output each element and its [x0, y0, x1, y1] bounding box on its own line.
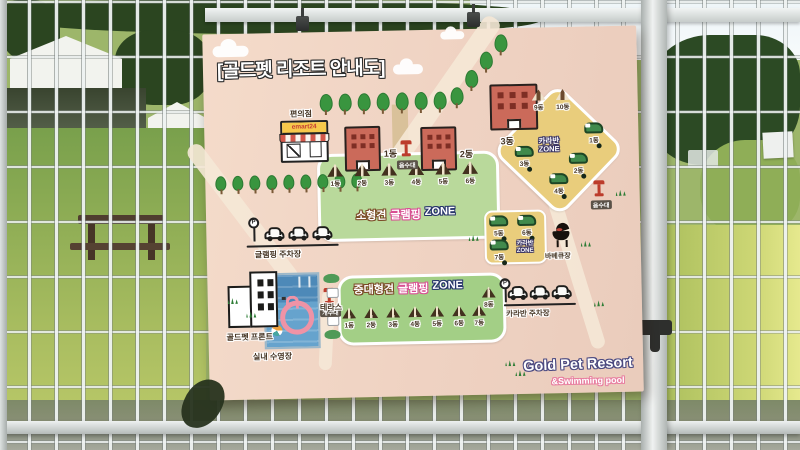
store-awning-icon: [279, 133, 329, 143]
fence-right-post: [641, 0, 667, 450]
car-icon: [508, 290, 528, 298]
caravan-icon: [549, 173, 568, 184]
pool-label: 실내 수영장: [253, 351, 292, 363]
tent-icon: [381, 163, 397, 176]
parking-line: [504, 303, 576, 307]
tent-label: 2동: [366, 319, 376, 329]
tree-icon: [395, 92, 408, 110]
front-building-icon: [227, 271, 288, 328]
photo-of-resort-sign: [골드펫 리조트 안내도] 편의점 emart24: [0, 0, 800, 450]
caravan-icon: [490, 239, 509, 250]
tent-label: 1동: [344, 319, 354, 329]
tent-label: 5동: [438, 175, 448, 185]
map-road: [546, 193, 607, 350]
pool-ladder-icon: [298, 276, 310, 287]
fence-bottom-rail: [0, 421, 800, 434]
tent-label: 2동: [357, 177, 367, 187]
fence-top-rail: [205, 8, 800, 22]
tree-icon: [232, 176, 243, 191]
building-windows: [497, 92, 503, 98]
terrace-bush-icon: [324, 330, 340, 339]
water-fountain-icon: [597, 184, 600, 194]
caravan-zone-label: 카라반 ZONE: [538, 137, 559, 153]
grill-legs: [557, 240, 559, 247]
building-door: [507, 119, 521, 128]
caravan-icon: [584, 122, 603, 133]
parking-sign-icon: P: [499, 278, 510, 289]
caravan-icon: [517, 215, 536, 226]
tree-icon: [338, 93, 351, 111]
fountain-label: 음수대: [591, 200, 612, 209]
tent-icon: [408, 306, 422, 317]
sign-board: [골드펫 리조트 안내도] 편의점 emart24: [202, 25, 644, 400]
store-icon: emart24: [280, 120, 329, 163]
terrace-table-icon: [327, 316, 339, 326]
terrace-bush-icon: [323, 274, 339, 283]
building-windows: [427, 135, 432, 140]
tent-label: 1동: [330, 178, 340, 188]
tent-label: 7동: [474, 317, 484, 327]
tent-label: 8동: [484, 299, 494, 309]
tree-icon: [450, 87, 463, 105]
bbq-label: 바베큐장: [545, 251, 571, 262]
store-label: 편의점: [290, 108, 312, 119]
building-label: 1동: [384, 147, 398, 160]
caravan-icon: [569, 153, 588, 164]
tent-label: 4동: [410, 318, 420, 328]
terrace-label: 테라스: [320, 302, 342, 313]
store-window-icon: [287, 144, 301, 158]
car-icon: [264, 231, 284, 239]
tree-icon: [480, 52, 493, 70]
map-title: [골드펫 리조트 안내도]: [217, 53, 385, 84]
building-label: 2동: [460, 147, 474, 160]
fence-left-post: [0, 0, 7, 450]
tent-icon: [354, 163, 370, 176]
tent-label: 5동: [432, 318, 442, 328]
brand-subtitle: &Swimming pool: [551, 375, 624, 387]
fountain-label: 음수대: [397, 160, 418, 169]
clip-icon: [296, 16, 309, 31]
car-icon: [288, 230, 308, 238]
tree-icon: [249, 175, 260, 190]
tent-label: 3동: [384, 177, 394, 187]
terrace-table-icon: [327, 288, 339, 298]
tree-icon: [465, 70, 478, 88]
car-icon: [552, 289, 572, 297]
tent-icon: [386, 307, 400, 318]
tent-icon: [435, 161, 451, 174]
front-building-tower: [249, 271, 278, 328]
caravan-box-label: 카라반 ZONE: [517, 241, 534, 254]
gate-latch: [650, 333, 660, 352]
caravan-icon: [489, 215, 508, 226]
tent-label: 4동: [411, 176, 421, 186]
car-icon: [312, 230, 332, 238]
grass-icon: [594, 300, 605, 306]
small-dog-zone-title: 소형견 글램핑 ZONE: [356, 205, 456, 223]
tree-icon: [433, 91, 446, 109]
tent-icon: [482, 286, 496, 297]
tree-icon: [357, 93, 370, 111]
tree-icon: [319, 94, 332, 112]
tent-icon: [364, 307, 378, 318]
car-icon: [530, 289, 550, 297]
tent-label: 3동: [388, 319, 398, 329]
grass-icon: [581, 240, 592, 246]
grass-icon: [616, 190, 627, 196]
grass-icon: [505, 360, 516, 366]
building-windows: [351, 134, 356, 139]
tent-icon: [555, 89, 569, 100]
tree-icon: [494, 34, 507, 52]
large-dog-zone-title: 중대형견 글램핑 ZONE: [353, 279, 463, 297]
tent-label: 9동: [534, 101, 544, 111]
caravan-icon: [515, 146, 534, 157]
tent-icon: [430, 306, 444, 317]
tree-icon: [215, 176, 226, 191]
tree-icon: [266, 175, 277, 190]
tree-icon: [376, 93, 389, 111]
tree-icon: [283, 175, 294, 190]
tent-label: 10동: [556, 101, 569, 111]
tree-icon: [414, 92, 427, 110]
tent-icon: [342, 307, 356, 318]
caravan-parking-label: 카라반 주차장: [506, 307, 550, 319]
building-label: 3동: [500, 134, 514, 147]
tent-icon: [327, 164, 343, 177]
tree-icon: [300, 174, 311, 189]
front-building-windows: [257, 279, 263, 286]
cloud-icon: [393, 64, 423, 75]
water-fountain-icon: [405, 144, 408, 154]
clip-icon: [467, 12, 480, 27]
store-door-icon: [309, 141, 321, 157]
front-building-windows: [267, 279, 273, 286]
brand-title: Gold Pet Resort: [523, 355, 633, 375]
front-building-label: 골드펫 프론트: [226, 331, 273, 343]
tent-label: 6동: [465, 175, 475, 185]
cloud-icon: [440, 31, 464, 40]
tent-label: 6동: [454, 317, 464, 327]
glamping-parking-label: 글램핑 주차장: [255, 249, 302, 261]
tent-icon: [452, 305, 466, 316]
tent-icon: [462, 161, 478, 174]
tent-icon: [531, 89, 545, 100]
